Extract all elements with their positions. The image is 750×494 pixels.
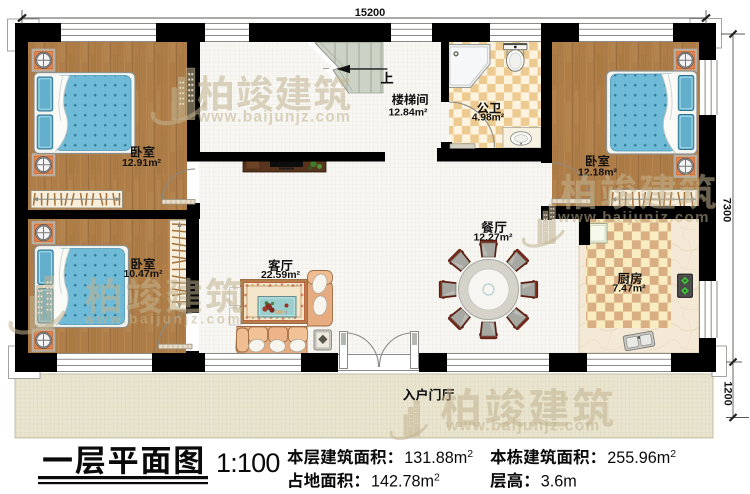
svg-text:15200: 15200 — [355, 7, 386, 19]
svg-text:4.98m²: 4.98m² — [472, 113, 505, 124]
svg-text:7300: 7300 — [721, 198, 733, 222]
svg-text:3.6m: 3.6m — [541, 473, 577, 491]
svg-text:1:100: 1:100 — [216, 448, 280, 478]
svg-text:12.84m²: 12.84m² — [388, 107, 428, 119]
svg-text:255.96m2: 255.96m2 — [607, 448, 676, 467]
svg-text:10.47m²: 10.47m² — [123, 268, 163, 280]
svg-text:142.78m2: 142.78m2 — [371, 472, 440, 491]
svg-text:www.baijunjz.com: www.baijunjz.com — [83, 312, 242, 327]
svg-text:www.baijunjz.com: www.baijunjz.com — [557, 209, 710, 226]
svg-text:12.91m²: 12.91m² — [122, 157, 162, 169]
svg-text:131.88m2: 131.88m2 — [404, 448, 473, 467]
svg-text:22.59m²: 22.59m² — [261, 269, 301, 281]
svg-text:www.baijunjz.com: www.baijunjz.com — [197, 109, 351, 126]
svg-text:www.baijunjz.com: www.baijunjz.com — [445, 418, 601, 435]
svg-text:1200: 1200 — [722, 381, 734, 405]
svg-text:12.27m²: 12.27m² — [473, 232, 513, 244]
svg-text:7.47m²: 7.47m² — [612, 283, 646, 295]
